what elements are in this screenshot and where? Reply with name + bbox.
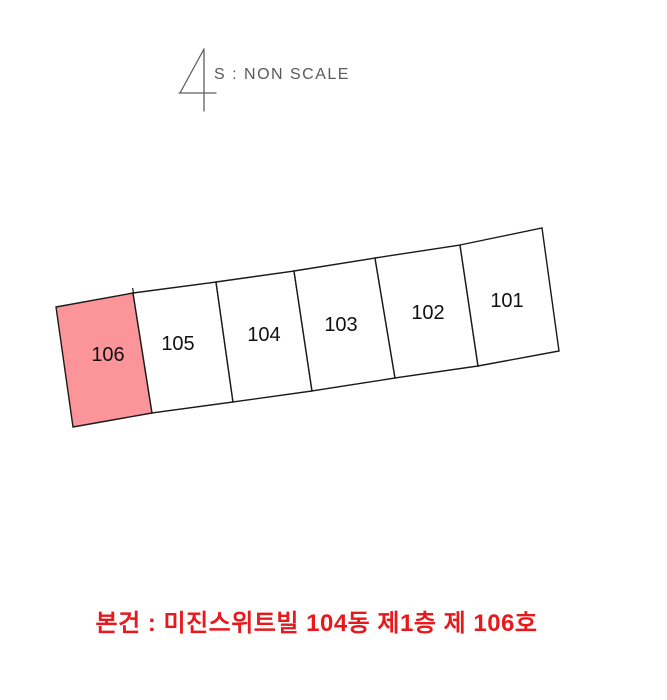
unit-label: 103 bbox=[311, 314, 371, 337]
unit-row bbox=[56, 228, 559, 427]
numeral-4-north-icon bbox=[179, 49, 216, 111]
scale-note-label: S : NON SCALE bbox=[214, 66, 350, 84]
unit-label: 106 bbox=[78, 344, 138, 367]
unit-label: 101 bbox=[477, 290, 537, 313]
appraisal-floorplan-page: S : NON SCALE 106 105 104 103 102 101 본건… bbox=[0, 0, 667, 700]
unit-label: 104 bbox=[234, 324, 294, 347]
unit-label: 105 bbox=[148, 333, 208, 356]
subject-caption: 본건 : 미진스위트빌 104동 제1층 제 106호 bbox=[0, 603, 633, 638]
unit-label: 102 bbox=[398, 302, 458, 325]
